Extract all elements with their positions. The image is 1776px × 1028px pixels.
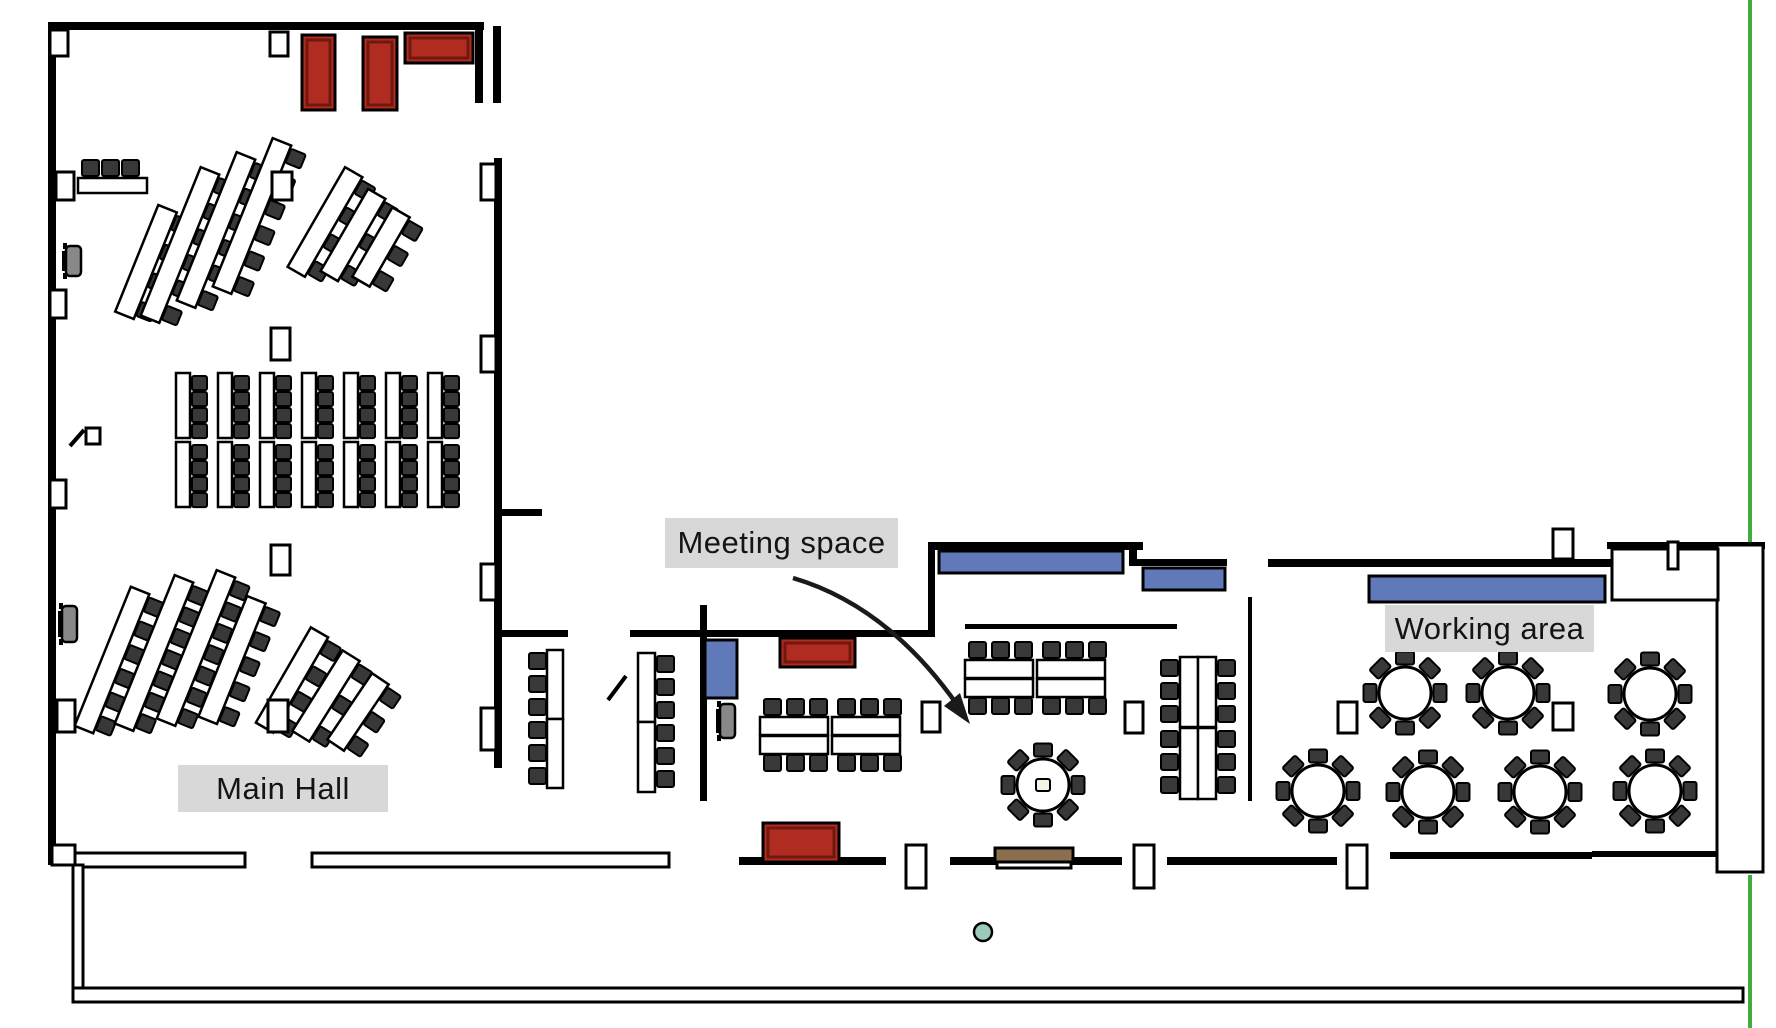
classroom-table bbox=[344, 373, 375, 438]
pillar-or-door bbox=[1668, 542, 1678, 569]
round-table bbox=[1614, 750, 1697, 833]
pillar-or-door bbox=[50, 30, 68, 56]
meeting-table-block bbox=[965, 642, 1106, 714]
podium-icon bbox=[58, 603, 77, 645]
pillar-or-door bbox=[75, 853, 245, 867]
round-table bbox=[1002, 744, 1085, 827]
classroom-table bbox=[302, 373, 333, 438]
classroom-table bbox=[260, 442, 291, 507]
main-hall-label: Main Hall bbox=[178, 765, 388, 812]
floorplan-page: Main Hall Meeting space Working area bbox=[0, 0, 1776, 1028]
pillar-or-door bbox=[56, 172, 74, 200]
pillar-or-door bbox=[1347, 845, 1367, 888]
meeting-space-label: Meeting space bbox=[665, 518, 898, 568]
pillar-or-door bbox=[1553, 529, 1573, 559]
pillar-or-door bbox=[271, 545, 290, 575]
blue-table bbox=[939, 551, 1123, 573]
classroom-table bbox=[260, 373, 291, 438]
pillar-or-door bbox=[73, 865, 83, 995]
registration-table bbox=[78, 160, 147, 193]
meeting-table-block bbox=[760, 699, 901, 771]
classroom-table bbox=[344, 442, 375, 507]
pillar-or-door bbox=[73, 988, 1743, 1002]
round-table bbox=[1277, 750, 1360, 833]
marker-dot bbox=[974, 923, 992, 941]
brown-table bbox=[995, 848, 1073, 862]
pillar-or-door bbox=[86, 428, 100, 444]
pillar-or-door bbox=[268, 700, 288, 732]
classroom-table bbox=[302, 442, 333, 507]
pillar-or-door bbox=[272, 172, 292, 200]
pillar-or-door bbox=[271, 328, 290, 360]
classroom-table bbox=[386, 373, 417, 438]
pillar-or-door bbox=[922, 702, 940, 732]
pillar-or-door bbox=[50, 480, 66, 508]
podium-icon bbox=[716, 701, 735, 741]
round-table bbox=[1467, 652, 1550, 735]
pillar-or-door bbox=[481, 564, 496, 600]
pillar-or-door bbox=[481, 708, 496, 750]
working-area-label: Working area bbox=[1385, 605, 1594, 652]
pillar-or-door bbox=[481, 164, 496, 200]
classroom-table bbox=[386, 442, 417, 507]
classroom-table bbox=[218, 442, 249, 507]
pillar-or-door bbox=[270, 32, 288, 56]
pillar-or-door bbox=[1134, 845, 1154, 888]
site-boundary-line bbox=[1748, 0, 1752, 1028]
pillar-or-door bbox=[1612, 549, 1718, 600]
pillar-or-door bbox=[1717, 545, 1763, 872]
blue-table bbox=[1143, 568, 1225, 590]
furniture-layer bbox=[75, 138, 1697, 833]
round-table bbox=[1364, 652, 1447, 735]
pillar-or-door bbox=[50, 290, 66, 318]
classroom-table bbox=[176, 373, 207, 438]
vertical-table-pair bbox=[638, 653, 674, 792]
podium-icon bbox=[62, 243, 81, 279]
double-column-tables bbox=[1161, 657, 1235, 799]
pillar-or-door bbox=[906, 845, 926, 888]
classroom-table bbox=[428, 373, 459, 438]
pillar-or-door bbox=[312, 853, 669, 867]
pillar-or-door bbox=[57, 700, 75, 732]
classroom-table bbox=[176, 442, 207, 507]
pillar-or-door bbox=[1338, 702, 1357, 733]
classroom-table bbox=[428, 442, 459, 507]
pillar-or-door bbox=[52, 845, 75, 865]
pillar-or-door bbox=[1553, 703, 1573, 730]
vertical-table-pair bbox=[529, 650, 563, 788]
round-table bbox=[1499, 751, 1582, 834]
pillar-or-door bbox=[1125, 702, 1143, 733]
pillar-or-door bbox=[481, 336, 496, 372]
round-table bbox=[1387, 751, 1470, 834]
blue-table bbox=[705, 640, 737, 698]
round-table bbox=[1609, 653, 1692, 736]
floorplan-drawing bbox=[0, 0, 1776, 1028]
blue-table bbox=[1369, 576, 1605, 602]
classroom-table bbox=[218, 373, 249, 438]
